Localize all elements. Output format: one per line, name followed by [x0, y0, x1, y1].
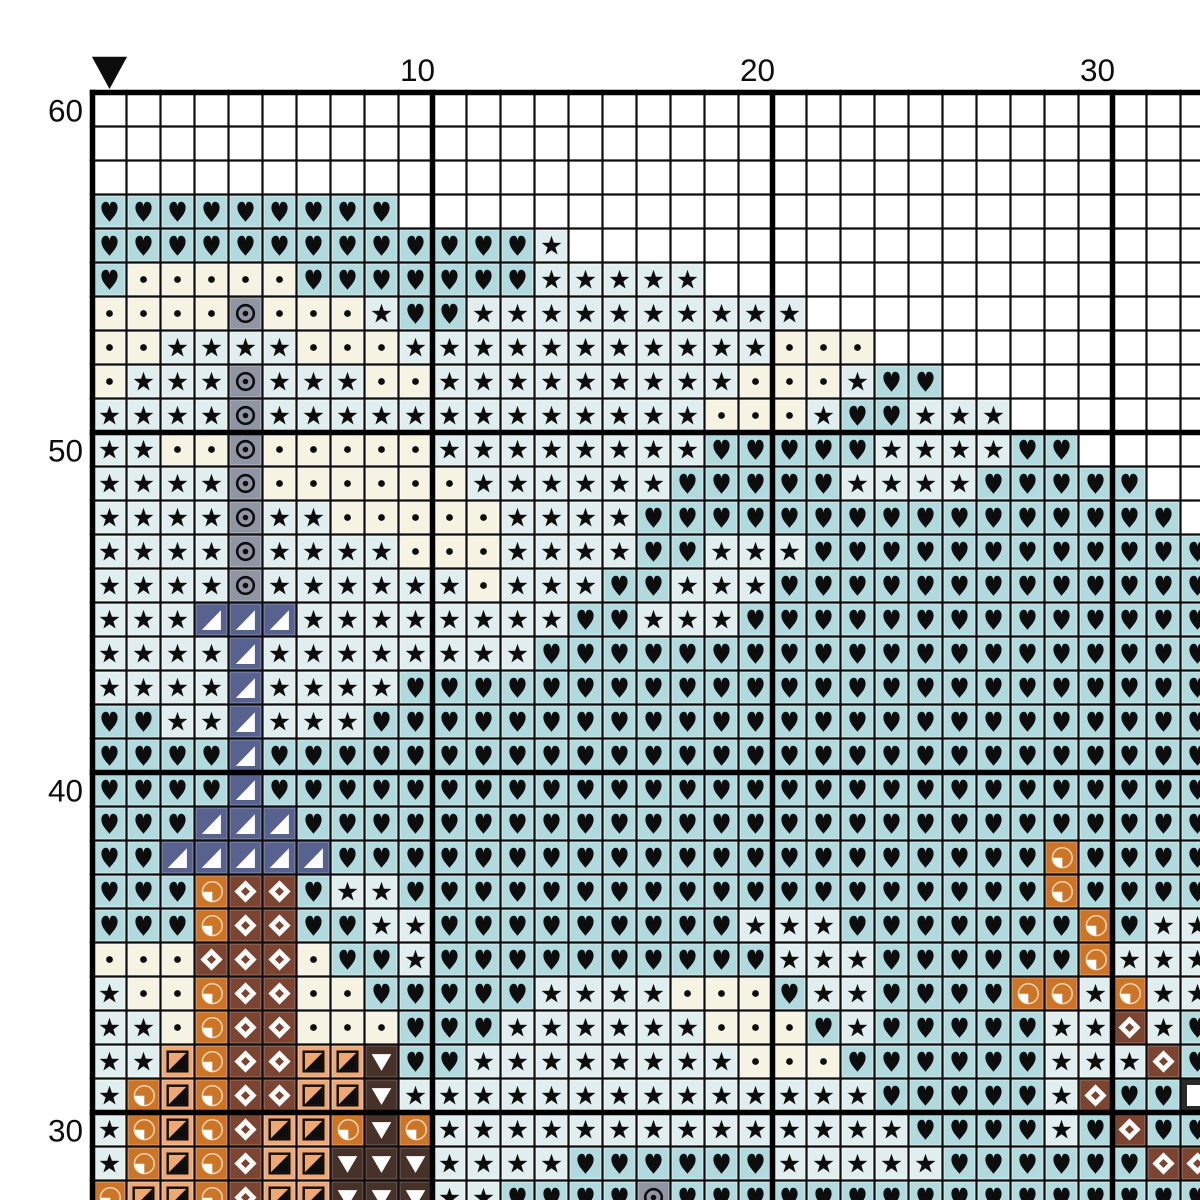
svg-text:50: 50	[48, 433, 83, 469]
svg-text:30: 30	[1080, 52, 1115, 88]
svg-text:40: 40	[48, 773, 83, 809]
svg-text:10: 10	[400, 52, 435, 88]
svg-text:60: 60	[48, 93, 83, 129]
svg-text:20: 20	[740, 52, 775, 88]
svg-text:30: 30	[48, 1113, 83, 1149]
